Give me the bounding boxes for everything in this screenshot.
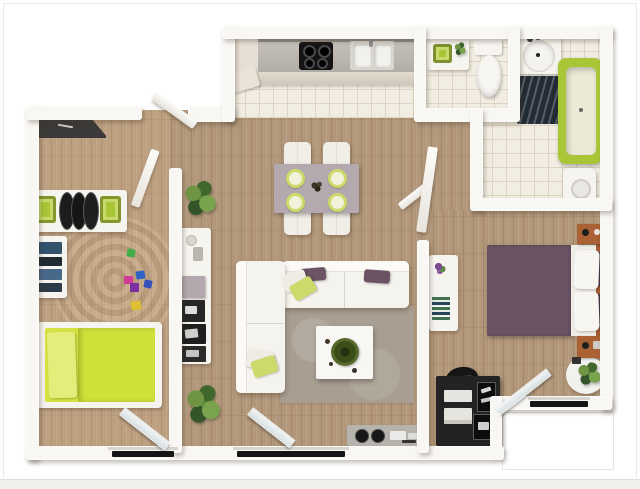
cooktop-burner	[304, 58, 315, 69]
window-frame	[108, 447, 178, 450]
lime-plate	[286, 193, 305, 212]
dresser-drawer	[444, 390, 472, 402]
sink-basin	[374, 44, 391, 67]
wall-kitchen-bath1	[414, 26, 426, 116]
bath1-toilet-bowl	[477, 55, 501, 97]
sink-faucet	[369, 38, 373, 47]
display-glyph	[481, 387, 492, 394]
plant-divider-top	[183, 180, 217, 218]
bedroom2-pillow	[573, 292, 599, 332]
display-glyph	[186, 350, 199, 357]
console-item	[390, 431, 406, 440]
kitchen-double-sink	[350, 41, 394, 70]
table-decor-dot	[325, 339, 330, 344]
window-sill-living	[237, 451, 345, 457]
black-display-box	[181, 346, 206, 362]
floor-plan-render	[0, 0, 640, 489]
wall-hall-dining	[470, 108, 483, 210]
bedroom1-lime-duvet	[78, 328, 155, 402]
cooktop-burner	[318, 45, 331, 58]
toy-block-navy	[143, 279, 152, 288]
glass-decor	[186, 235, 197, 246]
cooktop-burner	[303, 45, 316, 58]
wall-divider-bedroom1	[169, 168, 182, 453]
black-display-box	[179, 300, 205, 322]
nightstand-clock	[582, 342, 589, 349]
glass-decor	[193, 247, 203, 261]
table-centerpiece	[311, 181, 323, 192]
desk-book-stack	[432, 296, 450, 320]
sofa-cushion-seam	[247, 323, 284, 324]
toy-block-blue	[135, 270, 145, 279]
media-console	[347, 425, 424, 446]
bath1-plant	[454, 42, 466, 56]
green-storage-bin	[100, 196, 121, 223]
toy-block-green	[126, 248, 135, 257]
window-frame	[233, 447, 349, 450]
speaker	[371, 429, 385, 443]
wreath-centerpiece	[331, 338, 359, 366]
window-sill-bedroom2	[530, 401, 588, 407]
bath2-wave-bathmat	[517, 76, 559, 124]
bath2-lime-bathtub	[558, 58, 602, 164]
nightstand-clock	[582, 229, 589, 236]
sofa-cushion-seam	[344, 272, 345, 308]
speaker	[355, 429, 369, 443]
black-display-box	[180, 324, 206, 344]
bedroom1-pillow	[47, 332, 77, 399]
display-glyph	[185, 328, 199, 338]
bath1-toilet-tank	[474, 39, 502, 55]
toy-block-purple	[130, 283, 139, 292]
washer-door	[571, 179, 591, 199]
patio-outline	[502, 412, 614, 470]
window-sill-bedroom1	[112, 451, 174, 457]
console-item	[402, 440, 416, 443]
wall-kitchen-west	[222, 26, 235, 122]
lime-plate	[286, 169, 305, 188]
cooktop-burner	[317, 58, 328, 69]
wall-top-left	[26, 106, 142, 120]
bedroom1-wall-shelf	[29, 190, 127, 232]
plant-divider-bottom	[185, 384, 221, 426]
display-glyph	[185, 306, 197, 314]
bedroom2-duvet	[487, 245, 573, 336]
bedroom2-desk	[429, 255, 458, 331]
table-decor-dot	[352, 368, 357, 373]
sink-basin	[353, 44, 371, 67]
bathtub-drain	[579, 108, 583, 112]
wall-bath-bottom	[414, 108, 520, 122]
rug-decor-box	[572, 357, 581, 364]
toy-wheel	[83, 192, 99, 230]
table-decor-dot	[329, 362, 333, 366]
wall-exterior-left	[26, 106, 39, 460]
wall-bath1-bath2	[508, 26, 520, 116]
bath2-sink-drain	[536, 53, 540, 57]
gray-box	[181, 276, 205, 298]
wall-living-bedroom2	[417, 240, 429, 453]
wall-exterior-right	[600, 26, 613, 410]
kitchen-counter-front	[243, 72, 417, 85]
wardrobe-handle	[58, 124, 73, 129]
window-frame	[528, 397, 590, 400]
bath1-green-basin	[433, 44, 452, 63]
wall-bedroom2-north	[470, 198, 612, 211]
desk-flowers	[434, 262, 447, 275]
kitchen-cooktop	[299, 42, 333, 70]
divider-shelf-column	[177, 228, 211, 364]
image-bottom-strip	[0, 479, 640, 489]
bedroom2-pillow	[573, 250, 599, 290]
sofa-pillow-purple	[364, 269, 391, 284]
lime-plate	[328, 169, 347, 188]
display-glyph	[478, 422, 489, 430]
dresser-drawer	[444, 408, 472, 424]
toy-block-yellow	[130, 300, 141, 310]
lime-plate	[328, 193, 347, 212]
bedroom2-plant	[576, 362, 602, 386]
